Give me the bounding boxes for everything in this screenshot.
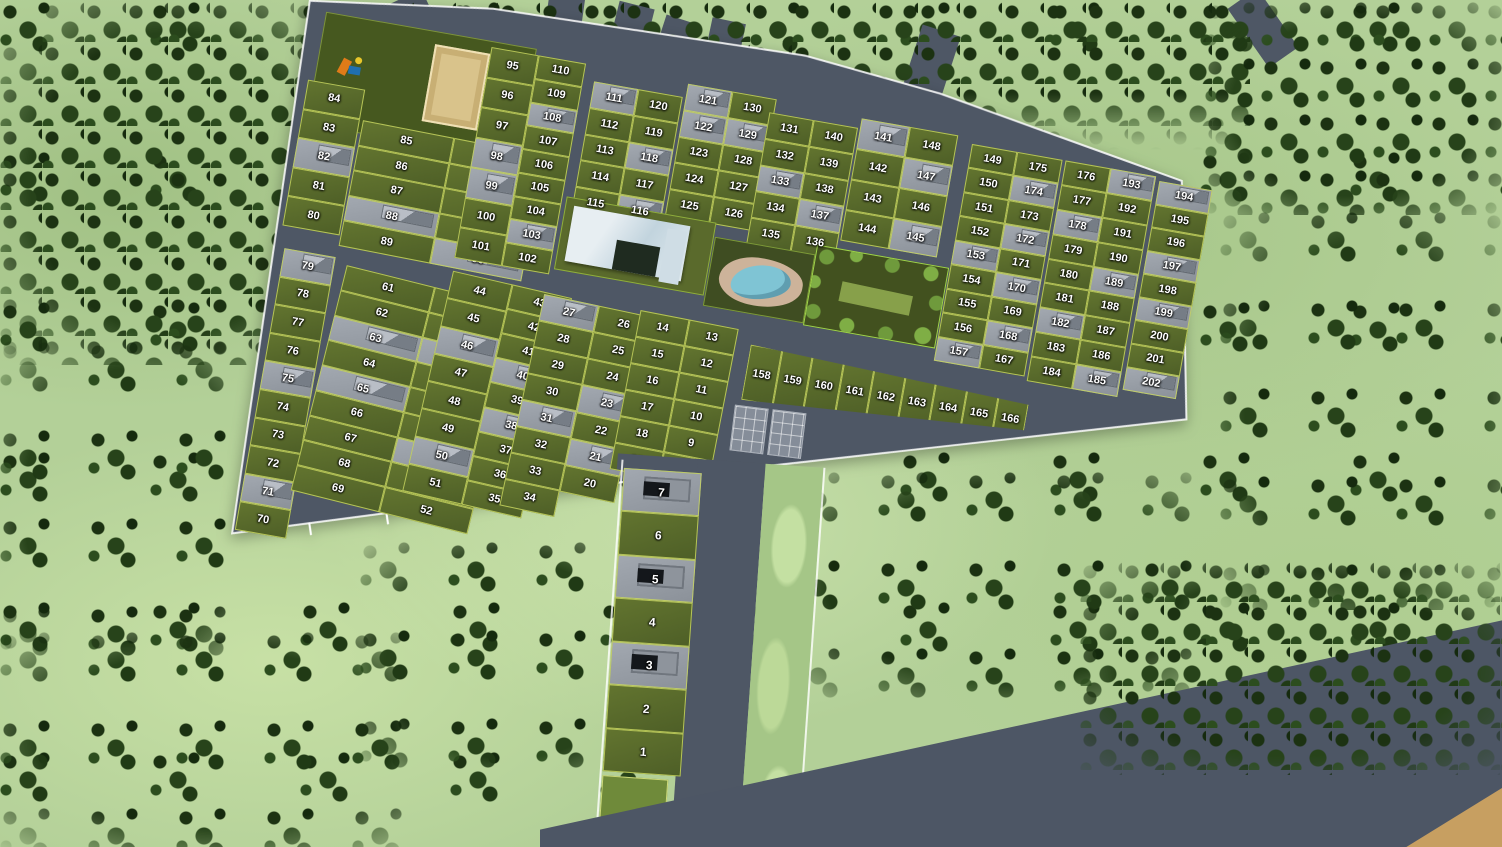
plot-number: 153 (966, 249, 986, 263)
plot-number: 99 (484, 180, 498, 193)
plot-number: 178 (1067, 219, 1087, 233)
plot-number: 16 (645, 374, 659, 387)
plot-number: 100 (476, 210, 496, 224)
plot-number: 122 (693, 120, 713, 134)
plot-number: 73 (271, 429, 285, 442)
plot-number: 105 (530, 181, 550, 195)
plot-number: 184 (1041, 366, 1061, 380)
plot-number: 82 (317, 151, 331, 164)
plot-number: 111 (605, 92, 624, 106)
plot-number: 62 (374, 307, 389, 321)
plot-number: 199 (1153, 306, 1173, 320)
plot-number: 194 (1174, 190, 1194, 204)
plot-number: 102 (517, 252, 537, 266)
plot-number: 183 (1046, 341, 1066, 355)
plot-number: 166 (1000, 412, 1020, 426)
plot-number: 174 (1024, 185, 1044, 199)
plot-number: 23 (600, 398, 614, 411)
plot-number: 172 (1015, 233, 1035, 247)
plot-number: 77 (291, 317, 305, 330)
plot-number: 14 (655, 321, 669, 334)
plot-number: 2 (642, 703, 650, 715)
plot-number: 154 (961, 273, 981, 287)
plot-number: 187 (1095, 325, 1115, 339)
plot-number: 180 (1059, 268, 1079, 282)
plot-number: 124 (684, 173, 704, 187)
plot-number: 70 (256, 514, 270, 527)
plot-number: 123 (689, 147, 709, 161)
plot-number: 85 (399, 135, 413, 148)
plot-number: 5 (652, 573, 660, 585)
plot-1[interactable]: 1 (603, 728, 684, 777)
plot-number: 15 (650, 348, 664, 361)
plot-number: 152 (970, 225, 990, 239)
plot-number: 188 (1100, 300, 1120, 314)
plot-number: 140 (824, 130, 844, 144)
plot-number: 186 (1091, 349, 1111, 363)
sports-courts (729, 405, 806, 459)
plot-number: 51 (428, 477, 442, 490)
plot-number: 133 (770, 175, 790, 189)
plot-number: 135 (761, 228, 781, 242)
plot-number: 192 (1117, 202, 1137, 216)
plot-number: 158 (751, 368, 771, 382)
plot-number: 120 (648, 99, 668, 113)
plot-number: 84 (327, 93, 341, 106)
plot-3[interactable]: 3 (609, 641, 690, 690)
plot-number: 65 (356, 382, 371, 396)
plot-number: 13 (705, 331, 719, 344)
plot-number: 130 (742, 102, 762, 116)
plot-number: 66 (349, 407, 364, 421)
plot-number: 29 (550, 359, 564, 372)
plot-number: 112 (600, 118, 619, 132)
house-roof-icon (643, 481, 670, 497)
plot-number: 138 (814, 183, 834, 197)
plot-number: 157 (949, 345, 969, 359)
plot-number: 117 (635, 178, 654, 192)
boundary-tick (307, 523, 313, 536)
plot-number: 196 (1166, 237, 1186, 251)
plot-2[interactable]: 2 (606, 684, 687, 733)
plot-number: 9 (687, 438, 695, 450)
plot-number: 50 (434, 450, 448, 463)
plot-number: 89 (380, 236, 394, 249)
plot-number: 86 (394, 160, 408, 173)
plot-number: 155 (957, 297, 977, 311)
plot-number: 185 (1087, 374, 1107, 388)
plot-number: 26 (616, 318, 630, 331)
plot-number: 141 (873, 131, 893, 145)
plot-number: 156 (953, 321, 973, 335)
plot-number: 200 (1149, 330, 1169, 344)
plot-number: 83 (322, 122, 336, 135)
plot-number: 6 (655, 529, 663, 541)
plot-number: 193 (1121, 178, 1141, 192)
plot-number: 113 (595, 144, 614, 158)
plot-number: 162 (876, 390, 896, 404)
plot-number: 139 (819, 157, 839, 171)
plot-number: 64 (362, 357, 377, 371)
plot-number: 170 (1007, 281, 1027, 295)
plot-number: 175 (1028, 161, 1048, 175)
plot-number: 149 (983, 153, 1003, 167)
plot-number: 190 (1108, 251, 1128, 265)
plot-number: 71 (261, 485, 275, 498)
plot-number: 171 (1011, 257, 1031, 271)
plot-number: 181 (1054, 292, 1074, 306)
plot-number: 10 (689, 411, 703, 424)
plot-number: 44 (472, 285, 486, 298)
plot-number: 11 (695, 384, 709, 397)
plot-number: 197 (1162, 260, 1182, 274)
plot-number: 128 (733, 154, 753, 168)
plot-number: 101 (471, 240, 491, 254)
plot-number: 72 (266, 457, 280, 470)
plot-number: 47 (453, 367, 467, 380)
plot-number: 79 (301, 260, 315, 273)
plot-number: 198 (1158, 283, 1178, 297)
tennis-court (767, 409, 806, 459)
plot-number: 126 (724, 207, 744, 221)
plot-number: 132 (775, 149, 795, 163)
plot-number: 18 (635, 427, 649, 440)
plot-number: 164 (938, 401, 958, 415)
plot-number: 202 (1141, 376, 1161, 390)
plot-number: 80 (307, 209, 321, 222)
plot-number: 191 (1113, 227, 1133, 241)
plot-number: 136 (805, 236, 825, 250)
play-structure-icon (338, 54, 367, 80)
plot-number: 151 (974, 201, 994, 215)
plot-number: 163 (907, 395, 927, 409)
plot-number: 97 (495, 120, 509, 133)
plot-4[interactable]: 4 (612, 598, 693, 647)
plot-number: 159 (783, 373, 803, 387)
plot-number: 177 (1072, 194, 1092, 208)
plot-number: 69 (331, 482, 346, 496)
plot-number: 30 (545, 386, 559, 399)
plot-7[interactable]: 7 (621, 468, 702, 517)
plot-number: 114 (590, 171, 609, 185)
plot-number: 107 (538, 134, 558, 148)
plot-number: 25 (611, 345, 625, 358)
park-lawn (838, 281, 913, 316)
plot-number: 129 (738, 128, 758, 142)
plot-number: 81 (312, 180, 326, 193)
plot-number: 147 (916, 170, 936, 184)
plot-number: 110 (551, 64, 570, 78)
plot-number: 182 (1050, 317, 1070, 331)
plot-number: 176 (1076, 170, 1096, 184)
plot-number: 28 (556, 333, 570, 346)
plot-number: 27 (562, 306, 576, 319)
site-plan-scene: 8483828180 85868788899493929190 95969798… (0, 0, 1502, 847)
plot-number: 12 (699, 358, 713, 371)
plot-number: 7 (658, 486, 666, 498)
plot-number: 169 (1002, 305, 1022, 319)
plot-number: 45 (466, 312, 480, 325)
plot-number: 108 (542, 111, 562, 125)
plot-number: 109 (546, 88, 566, 102)
plot-number: 34 (522, 491, 536, 504)
plot-number: 24 (605, 371, 619, 384)
plot-number: 95 (506, 60, 520, 73)
plot-number: 142 (868, 161, 888, 175)
plot-number: 179 (1063, 243, 1083, 257)
plot-number: 1 (639, 746, 647, 758)
plot-number: 76 (286, 345, 300, 358)
plot-number: 146 (911, 200, 931, 214)
plot-number: 68 (337, 457, 352, 471)
plot-number: 87 (389, 185, 403, 198)
plot-number: 119 (644, 126, 663, 140)
plot-number: 67 (343, 432, 358, 446)
plot-number: 145 (905, 231, 925, 245)
plot-number: 168 (998, 329, 1018, 343)
plot-number: 173 (1019, 209, 1039, 223)
plot-number: 61 (381, 282, 396, 296)
plot-number: 131 (779, 122, 799, 136)
plot-number: 161 (845, 384, 865, 398)
plot-number: 4 (649, 616, 657, 628)
plot-number: 3 (645, 659, 653, 671)
plot-number: 88 (385, 210, 399, 223)
plot-number: 121 (698, 94, 718, 108)
plot-number: 17 (640, 401, 654, 414)
plot-number: 144 (857, 222, 877, 236)
plot-number: 104 (526, 205, 546, 219)
plot-number: 189 (1104, 276, 1124, 290)
plot-number: 33 (528, 465, 542, 478)
plot-number: 160 (814, 379, 834, 393)
plot-number: 74 (276, 401, 290, 414)
plot-number: 167 (994, 353, 1014, 367)
plot-number: 63 (368, 332, 383, 346)
plot-number: 75 (281, 373, 295, 386)
plot-number: 127 (728, 181, 748, 195)
plot-number: 46 (460, 340, 474, 353)
plot-number: 31 (539, 412, 553, 425)
plot-number: 195 (1170, 213, 1190, 227)
plot-number: 137 (810, 209, 830, 223)
tennis-court (729, 405, 768, 455)
plot-number: 49 (441, 422, 455, 435)
plot-number: 150 (978, 177, 998, 191)
plot-number: 165 (969, 406, 989, 420)
plot-number: 148 (921, 139, 941, 153)
plot-number: 96 (500, 90, 514, 103)
plot-number: 201 (1145, 353, 1165, 367)
plot-number: 78 (296, 288, 310, 301)
plot-number: 118 (639, 152, 658, 166)
plot-number: 103 (521, 228, 541, 242)
plot-number: 22 (594, 424, 608, 437)
plot-number: 125 (679, 199, 699, 213)
plot-number: 52 (419, 504, 434, 518)
plot-number: 134 (765, 202, 785, 216)
plot-number: 106 (534, 158, 554, 172)
plot-number: 98 (490, 150, 504, 163)
clubhouse-building (565, 206, 691, 282)
house-roof-icon (631, 654, 658, 670)
house-roof-icon (637, 568, 664, 584)
plot-number: 143 (862, 192, 882, 206)
plot-number: 32 (534, 438, 548, 451)
plot-5[interactable]: 5 (615, 554, 696, 603)
plot-6[interactable]: 6 (618, 511, 699, 560)
plot-number: 48 (447, 395, 461, 408)
